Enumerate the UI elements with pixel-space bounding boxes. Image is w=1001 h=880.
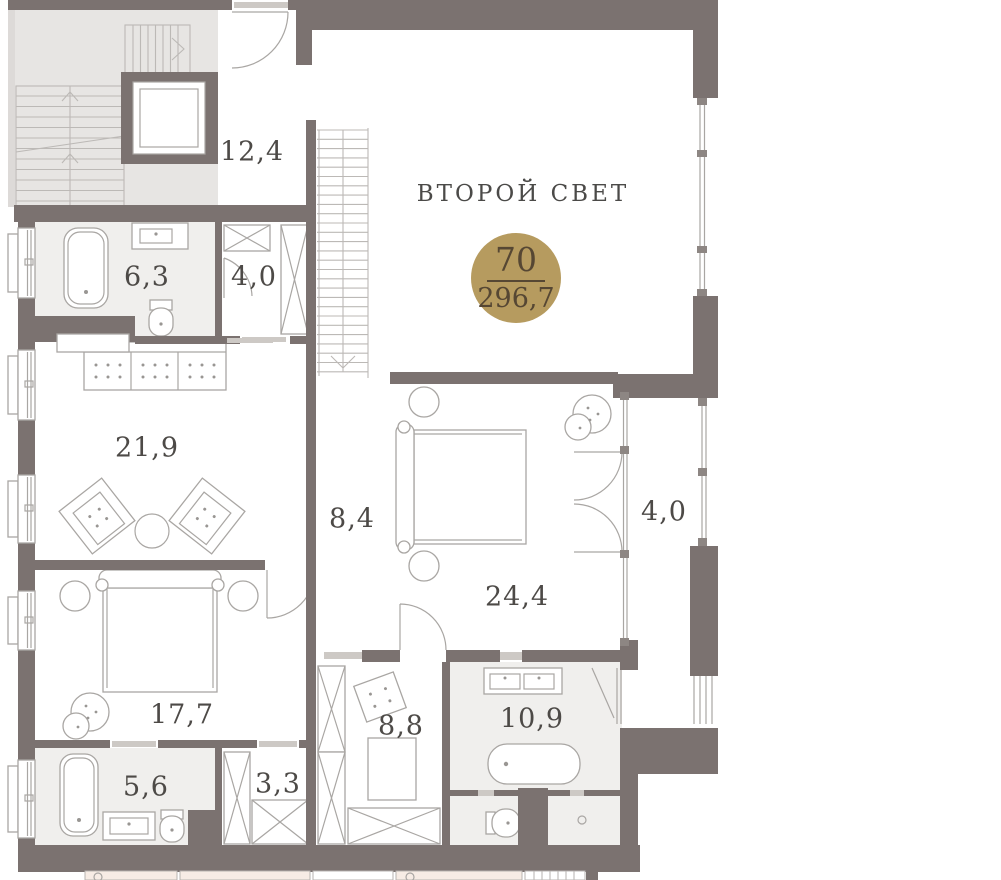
internal-staircase-icon bbox=[317, 128, 369, 378]
double-washbasin-icon bbox=[484, 668, 562, 694]
floor-plan: ВТОРОЙ СВЕТ 70 296,7 12,4 6,3 4,0 21,9 8… bbox=[0, 0, 1001, 880]
room-area-master-bedroom: 24,4 bbox=[485, 582, 549, 613]
coffee-table-icon bbox=[135, 514, 169, 548]
washbasin-icon bbox=[132, 223, 188, 249]
room-area-bathroom-bottom: 5,6 bbox=[123, 772, 169, 803]
washbasin-icon bbox=[103, 812, 155, 840]
entry-door-icon bbox=[232, 12, 288, 68]
island-dresser-icon bbox=[368, 738, 416, 800]
room-area-bedroom-2: 17,7 bbox=[150, 700, 214, 731]
armchair-icon bbox=[59, 478, 135, 554]
room-area-bathroom-top: 6,3 bbox=[124, 262, 170, 293]
nightstand-icon bbox=[228, 581, 258, 611]
nightstand-icon bbox=[409, 551, 439, 581]
toilet-icon bbox=[149, 300, 173, 336]
console-icon bbox=[57, 334, 129, 352]
armchair-icon bbox=[169, 478, 245, 554]
room-area-living-room: 21,9 bbox=[115, 433, 179, 464]
toilet-icon bbox=[486, 809, 520, 837]
room-area-wardrobe-bottom: 3,3 bbox=[255, 769, 301, 800]
room-area-wardrobe-top: 4,0 bbox=[231, 262, 277, 293]
bed-icon bbox=[96, 570, 224, 692]
toilet-icon bbox=[160, 810, 184, 842]
elevator-icon bbox=[121, 72, 218, 164]
freestanding-bathtub-icon bbox=[488, 744, 580, 784]
room-area-entry-hall: 12,4 bbox=[220, 137, 284, 168]
balcony-door-icon bbox=[574, 452, 622, 552]
bathtub-icon bbox=[60, 754, 98, 836]
nightstand-icon bbox=[60, 581, 90, 611]
room-area-master-bathroom: 10,9 bbox=[500, 704, 564, 735]
bedroom-door-icon bbox=[400, 604, 446, 650]
room-area-dressing-room: 8,8 bbox=[378, 711, 424, 742]
unit-badge: 70 296,7 bbox=[471, 233, 561, 323]
badge-divider bbox=[487, 280, 545, 282]
bed-icon bbox=[396, 421, 526, 553]
plant-icon bbox=[565, 395, 611, 440]
unit-total-area: 296,7 bbox=[477, 285, 554, 313]
neighbour-unit-sliver bbox=[85, 871, 585, 880]
room-area-balcony: 4,0 bbox=[641, 497, 687, 528]
plant-icon bbox=[63, 693, 109, 739]
bathtub-icon bbox=[64, 228, 108, 308]
nightstand-icon bbox=[409, 387, 439, 417]
room-area-corridor: 8,4 bbox=[329, 504, 375, 535]
double-height-label: ВТОРОЙ СВЕТ bbox=[417, 181, 629, 207]
unit-number: 70 bbox=[495, 243, 537, 278]
